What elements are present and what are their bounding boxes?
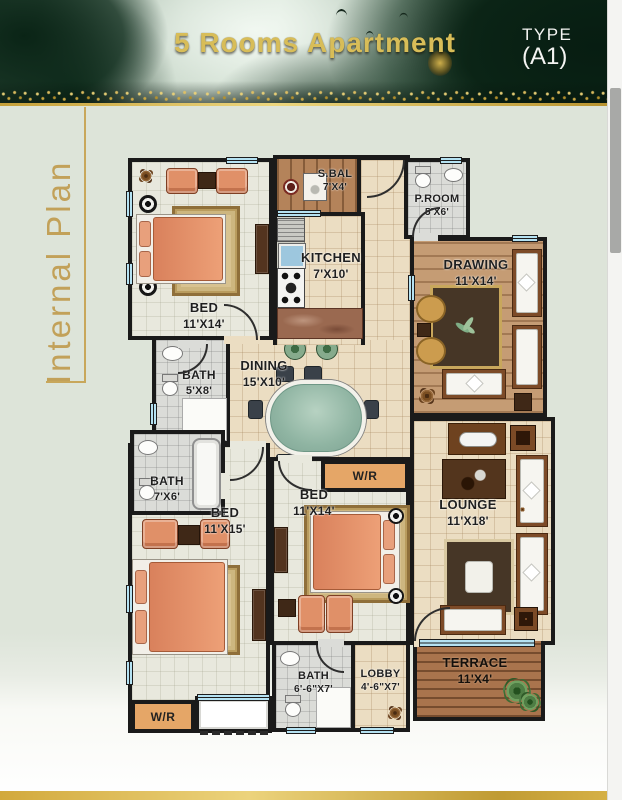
window-icon — [286, 727, 316, 734]
window-icon — [512, 235, 538, 242]
armchair-icon — [142, 519, 178, 549]
bird-icon — [399, 13, 409, 19]
side-table-icon — [514, 393, 532, 411]
window-icon — [360, 727, 394, 734]
rug-icon — [444, 539, 514, 615]
window-icon — [126, 191, 133, 217]
toilet-icon — [414, 166, 430, 187]
floor-plan: DINING 15'X10' BED 11'X14' — [122, 155, 555, 741]
plant-icon — [140, 170, 152, 182]
bed-icon — [310, 511, 400, 593]
room-label-bed3: BED 11'X14' — [274, 487, 354, 519]
side-table-icon — [198, 172, 216, 189]
gold-speckles — [0, 88, 608, 103]
armchair-icon — [166, 168, 198, 194]
room-label-drawing: DRAWING 11'X14' — [436, 257, 516, 289]
armchair-icon — [216, 168, 248, 194]
plant-icon — [420, 389, 434, 403]
room-kitchen: KITCHEN 7'X10' — [273, 212, 365, 345]
window-icon — [408, 275, 415, 301]
bathtub-icon — [192, 438, 221, 510]
wardrobe-icon — [252, 589, 266, 641]
scrollbar-thumb[interactable] — [610, 88, 621, 253]
wardrobe-icon — [255, 224, 269, 274]
fridge-icon — [277, 218, 305, 242]
room-label-lobby: LOBBY 4'-6"X7' — [355, 667, 406, 694]
bird-icon — [336, 9, 348, 16]
room-label-lounge: LOUNGE 11'X18' — [428, 497, 508, 529]
round-chair-icon — [416, 295, 446, 323]
tv-console-icon — [448, 423, 506, 455]
closet — [195, 696, 272, 733]
side-table-icon — [278, 599, 296, 617]
plant-icon — [521, 693, 539, 711]
sofa-icon — [512, 249, 542, 317]
room-drawing: DRAWING 11'X14' — [410, 237, 547, 417]
sofa-icon — [512, 325, 542, 389]
sink-icon — [444, 168, 463, 182]
round-chair-icon — [416, 337, 446, 365]
bottom-border — [0, 791, 622, 800]
window-icon — [150, 403, 157, 425]
type-badge: TYPE (A1) — [522, 26, 572, 69]
armchair-icon — [326, 595, 353, 633]
window-icon — [277, 210, 321, 217]
room-sbal: S.BAL 7'X4' — [273, 155, 361, 216]
bed-icon — [132, 559, 228, 655]
room-label-bed2: BED 11'X15' — [186, 505, 264, 537]
internal-plan-label: Internal Plan — [40, 128, 78, 384]
room-label-kitchen: KITCHEN 7'X10' — [291, 250, 371, 282]
room-bed1: BED 11'X14' — [128, 158, 273, 340]
dining-table-icon — [266, 380, 366, 456]
side-table-icon — [417, 323, 431, 337]
window-icon — [126, 263, 133, 285]
sink-icon — [280, 651, 300, 666]
window-icon — [126, 661, 133, 685]
sofa-icon — [516, 533, 548, 615]
plant-icon — [389, 707, 401, 719]
room-label-sbal: S.BAL 7'X4' — [313, 167, 357, 194]
room-wr-bed2: W/R — [131, 700, 195, 733]
page-title: 5 Rooms Apartment — [150, 27, 480, 59]
dashed-wall — [200, 731, 268, 735]
planter-icon — [283, 179, 299, 195]
side-table-icon — [510, 425, 536, 451]
room-label-terrace: TERRACE 11'X4' — [435, 655, 515, 687]
sliding-door-icon — [419, 639, 535, 647]
room-bath2: BATH 7'X6' — [130, 430, 225, 515]
speaker-icon — [388, 588, 404, 604]
window-icon — [126, 585, 133, 613]
window-icon — [197, 694, 270, 701]
armchair-icon — [298, 595, 325, 633]
leaf-motif — [448, 309, 484, 345]
room-lobby: LOBBY 4'-6"X7' — [351, 641, 410, 732]
sofa-icon — [442, 369, 506, 399]
toilet-icon — [284, 695, 300, 716]
counter-icon — [277, 308, 363, 339]
side-table-icon — [514, 607, 538, 631]
plant-icon — [520, 507, 525, 512]
wardrobe-icon — [274, 527, 288, 573]
sink-icon — [138, 440, 158, 455]
room-label-dining: DINING 15'X10' — [230, 358, 298, 390]
header-banner: 5 Rooms Apartment TYPE (A1) — [0, 0, 608, 103]
type-value: (A1) — [522, 44, 572, 69]
sofa-icon — [516, 455, 548, 527]
bed-icon — [136, 214, 226, 284]
window-icon — [440, 157, 462, 164]
type-label: TYPE — [522, 26, 572, 44]
scrollbar-track[interactable] — [607, 0, 622, 800]
speaker-icon — [139, 195, 157, 213]
room-terrace: TERRACE 11'X4' — [413, 641, 545, 721]
speaker-icon — [388, 508, 404, 524]
window-icon — [226, 157, 258, 164]
dining-chair-icon — [364, 400, 379, 419]
room-label-bath2: BATH 7'X6' — [138, 474, 196, 504]
sidebar-divider — [84, 107, 86, 383]
room-label-bath3: BATH 6'-6"X7' — [278, 669, 349, 696]
dining-chair-icon — [248, 400, 263, 419]
desk-icon — [442, 459, 506, 499]
sidebar-underline — [46, 381, 86, 383]
